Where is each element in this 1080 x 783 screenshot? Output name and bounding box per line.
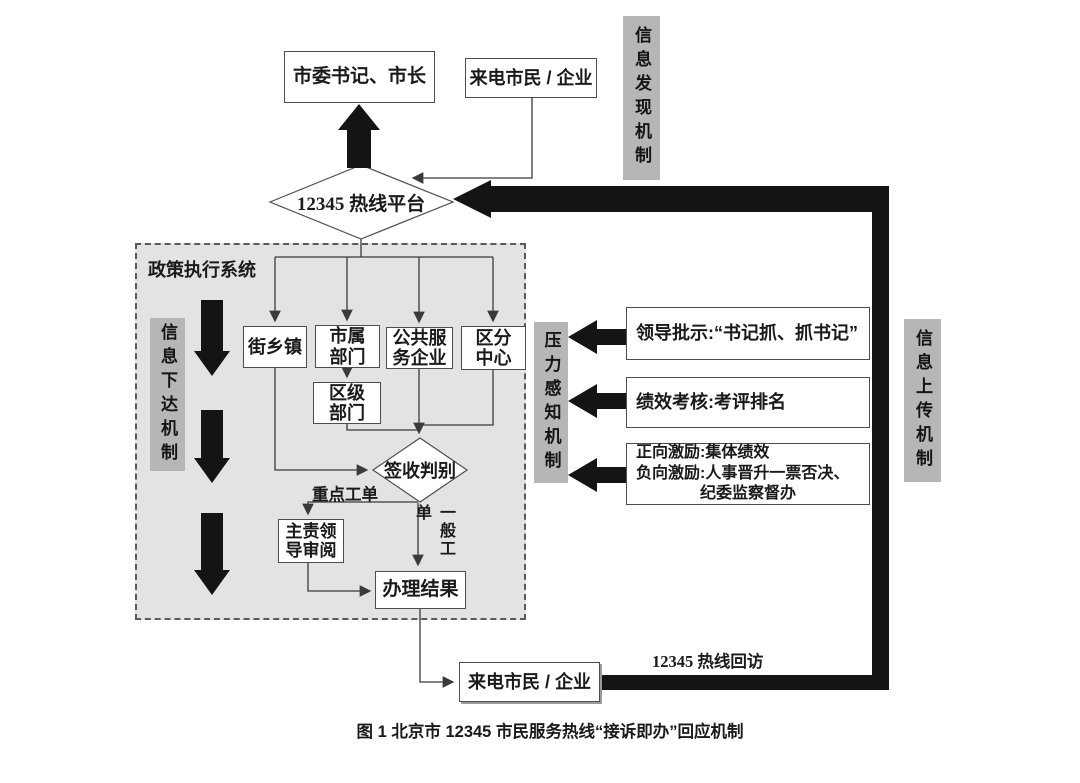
key-ticket-label: 重点工单 — [312, 481, 392, 505]
pressure-arrow-3-head — [568, 458, 597, 492]
mechanism-dispatch: 信息下达机制 — [150, 318, 185, 471]
big-left-arrow-body — [491, 186, 888, 212]
edge-center-merge — [419, 370, 493, 425]
node-lead-review: 主责领 导审阅 — [278, 519, 344, 563]
edge-review-to-result — [308, 563, 369, 591]
mechanism-discovery: 信息发现机制 — [623, 16, 660, 180]
node-sign-judge: 签收判别 — [375, 457, 465, 483]
figure-caption: 图 1 北京市 12345 市民服务热线“接诉即办”回应机制 — [150, 718, 950, 742]
pressure-arrow-3-shaft — [597, 467, 627, 483]
node-district-dept: 区级 部门 — [313, 382, 381, 424]
down-arrow-2 — [194, 410, 230, 483]
node-callers-top: 来电市民 / 企业 — [465, 58, 597, 98]
mechanism-pressure: 压力感知机制 — [534, 322, 568, 483]
callback-label: 12345 热线回访 — [652, 648, 792, 672]
edge-callers-to-platform — [414, 98, 532, 178]
node-municipal-dept: 市属 部门 — [315, 325, 380, 368]
edge-district-dept-merge — [347, 424, 418, 430]
node-leader-note: 领导批示:“书记抓、抓书记” — [626, 307, 870, 360]
node-public-service-firm: 公共服 务企业 — [386, 327, 453, 369]
node-callers-bottom: 来电市民 / 企业 — [459, 662, 600, 702]
pressure-arrow-1-shaft — [597, 329, 627, 345]
big-left-arrow-head — [453, 180, 491, 218]
feedback-bottom-bar — [602, 675, 888, 690]
feedback-vertical-bar — [872, 186, 889, 690]
node-district-center: 区分 中心 — [461, 326, 526, 370]
flowchart-canvas: 市委书记、市长 来电市民 / 企业 12345 热线平台 政策执行系统 街乡镇 … — [0, 0, 1080, 783]
edge-result-to-callers — [420, 609, 452, 682]
general-ticket-label: 一般工单 — [423, 504, 443, 570]
node-city-leaders: 市委书记、市长 — [284, 51, 435, 103]
down-arrow-1 — [194, 300, 230, 376]
node-handle-result: 办理结果 — [375, 571, 466, 609]
node-performance-review: 绩效考核:考评排名 — [626, 377, 870, 428]
node-incentives: 正向激励:集体绩效 负向激励:人事晋升一票否决、 纪委监察督办 — [626, 443, 870, 505]
pressure-arrow-2-shaft — [597, 393, 627, 409]
node-street-township: 街乡镇 — [243, 326, 307, 368]
up-arrow-platform-to-leaders — [338, 104, 380, 168]
policy-system-title: 政策执行系统 — [148, 256, 308, 282]
mechanism-upload: 信息上传机制 — [904, 319, 941, 482]
node-hotline-platform: 12345 热线平台 — [286, 188, 436, 216]
pressure-arrow-2-head — [568, 384, 597, 418]
down-arrow-3 — [194, 513, 230, 595]
pressure-arrow-1-head — [568, 320, 597, 354]
